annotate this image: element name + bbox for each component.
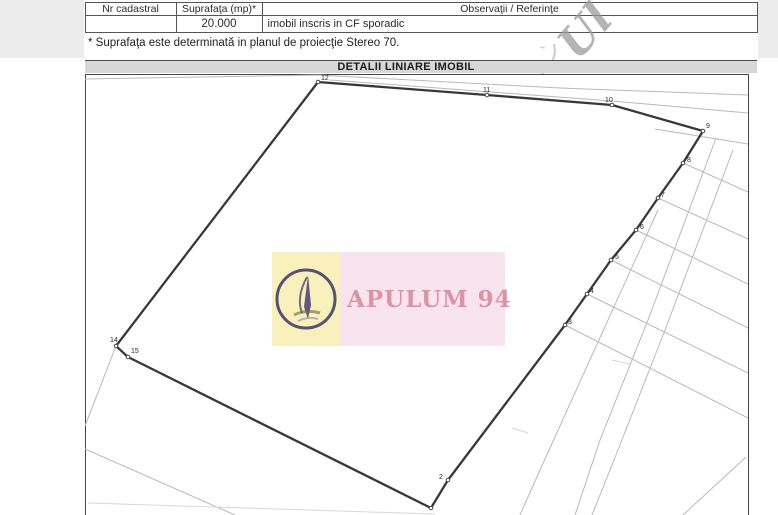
watermark-text: APULUM 94 — [340, 286, 512, 313]
apulum-logo-icon — [274, 267, 338, 331]
watermark-text-panel: APULUM 94 — [340, 252, 505, 346]
neighbor-parcel-line — [512, 428, 528, 433]
neighbor-parcel-line — [611, 260, 748, 328]
vertex-label-8: 8 — [687, 157, 691, 164]
vertex-label-14: 14 — [110, 337, 118, 344]
neighbor-parcel-line — [683, 457, 746, 515]
parcel-vertex-marker — [585, 292, 589, 296]
vertex-label-11: 11 — [483, 87, 490, 94]
vertex-label-5: 5 — [615, 254, 619, 261]
cadastral-document-page: Nr cadastral Suprafaţa (mp)* Observaţii … — [0, 0, 778, 515]
cadastral-table: Nr cadastral Suprafaţa (mp)* Observaţii … — [85, 2, 757, 32]
surface-note: * Suprafaţa este determinată in planul d… — [88, 37, 399, 49]
neighbor-parcel-line — [592, 150, 733, 515]
section-title-band: DETALII LINIARE IMOBIL — [85, 60, 757, 73]
header-observatii: Observaţii / Referinţe — [262, 2, 758, 16]
header-nr-cadastral: Nr cadastral — [85, 2, 177, 16]
parcel-vertex-marker — [701, 129, 705, 133]
vertex-label-7: 7 — [661, 192, 665, 199]
parcel-vertex-marker — [634, 228, 638, 232]
vertex-label-6: 6 — [640, 224, 644, 231]
parcel-vertex-marker — [656, 196, 660, 200]
parcel-vertex-marker — [114, 344, 118, 348]
value-suprafata: 20.000 — [176, 15, 263, 33]
vertex-label-2: 2 — [439, 474, 443, 481]
neighbor-parcel-line — [575, 138, 716, 515]
neighbor-parcel-line — [658, 198, 748, 239]
vertex-label-3: 3 — [568, 319, 572, 326]
vertex-label-10: 10 — [605, 97, 613, 104]
scan-margin-shade-right — [758, 0, 778, 58]
apulum-watermark: APULUM 94 — [272, 252, 505, 346]
neighbor-parcel-line — [565, 325, 748, 418]
vertex-label-9: 9 — [706, 123, 710, 130]
parcel-vertex-marker — [563, 323, 567, 327]
neighbor-parcel-line — [88, 503, 435, 514]
value-nr-cadastral — [85, 15, 177, 33]
parcel-vertex-marker — [429, 506, 433, 510]
neighbor-parcel-line — [520, 210, 658, 515]
parcel-vertex-marker — [609, 258, 613, 262]
neighbor-parcel-line — [85, 346, 116, 426]
neighbor-parcel-line — [587, 294, 748, 373]
neighbor-parcel-line — [683, 163, 748, 192]
neighbor-parcel-line — [85, 75, 748, 95]
scan-margin-shade-left — [0, 0, 84, 58]
vertex-label-15: 15 — [131, 348, 139, 355]
header-suprafata: Suprafaţa (mp)* — [176, 2, 263, 16]
parcel-vertex-marker — [316, 80, 320, 84]
parcel-vertex-marker — [681, 161, 685, 165]
vertex-label-4: 4 — [590, 288, 594, 295]
vertex-label-12: 12 — [321, 75, 329, 82]
parcel-vertex-marker — [126, 355, 130, 359]
neighbor-parcel-line — [612, 360, 630, 364]
watermark-logo-panel — [272, 252, 340, 346]
neighbor-parcel-line — [330, 80, 748, 113]
value-observatii: imobil inscris in CF sporadic — [262, 15, 758, 33]
parcel-vertex-marker — [446, 478, 450, 482]
neighbor-parcel-line — [636, 230, 748, 284]
